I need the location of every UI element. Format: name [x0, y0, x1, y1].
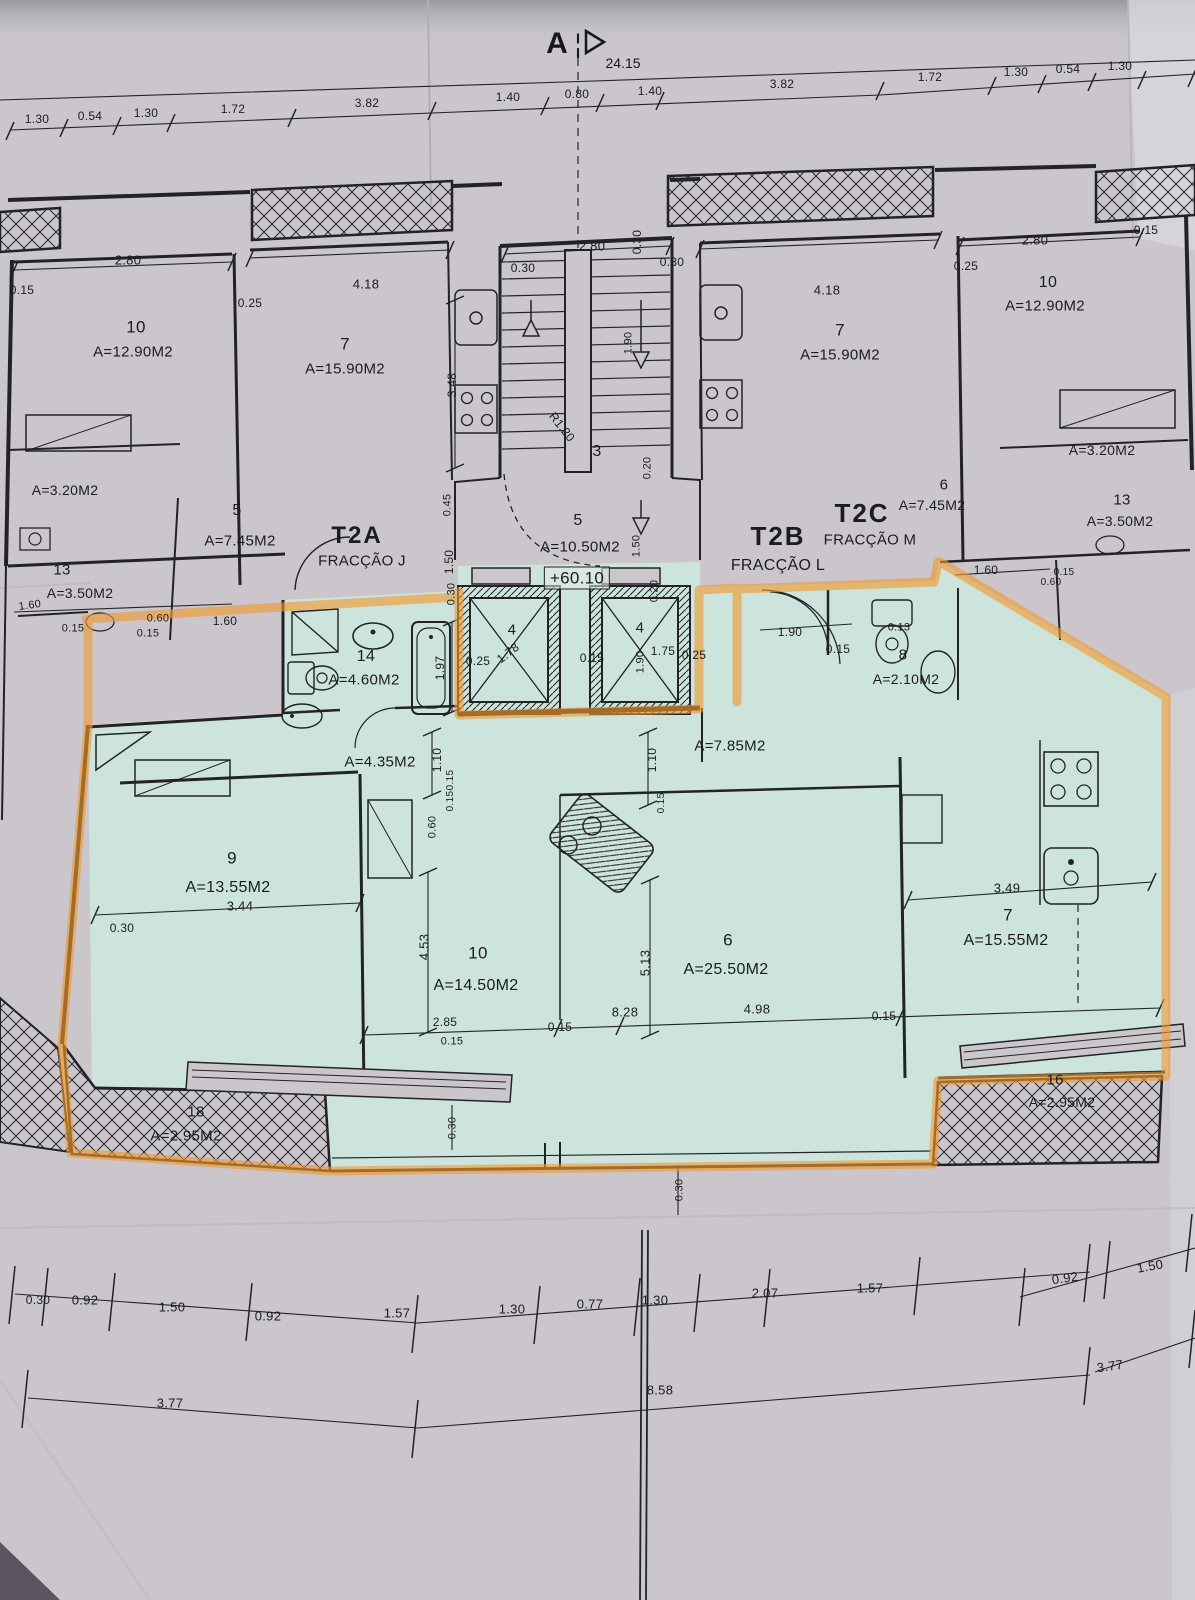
- dimension-label: 0.92: [255, 1310, 282, 1323]
- dimension-label: 4.98: [744, 1003, 771, 1016]
- elevator-number: 4: [508, 623, 517, 638]
- dimension-label: 1.30: [499, 1303, 526, 1316]
- room-number: 7: [835, 322, 845, 339]
- dimension-label: 0.13: [888, 623, 911, 634]
- room-number: 7: [340, 336, 350, 353]
- unit-code-t2c: T2C: [834, 500, 889, 526]
- dimension-label: 1.57: [857, 1282, 884, 1295]
- dimension-label: 0.15: [580, 652, 605, 664]
- dimension-label: 1.72: [221, 103, 246, 115]
- room-area: A=4.35M2: [344, 755, 415, 770]
- room-area: A=3.20M2: [32, 483, 99, 497]
- dimension-label: 0.30: [660, 256, 685, 268]
- room-number: 14: [357, 649, 375, 665]
- dimension-label: 3.77: [1096, 1358, 1124, 1375]
- room-number: 6: [723, 932, 733, 949]
- dimension-label: 5.13: [639, 950, 652, 977]
- room-number: 3: [592, 444, 601, 460]
- dimension-label: 0.60: [147, 614, 170, 625]
- dimension-label: 0.15: [826, 643, 851, 655]
- dimension-label: 2.85: [433, 1016, 458, 1028]
- unit-code-t2b: T2B: [750, 523, 805, 549]
- fraction-m-label: FRACÇÃO M: [824, 533, 917, 548]
- floor-plan-photo: A ¦ 24.15 1.300.541.301.723.821.400.801.…: [0, 0, 1195, 1600]
- dimension-label: 8.28: [612, 1006, 639, 1019]
- dimension-label: 1.60: [974, 564, 999, 576]
- room-number: 16: [1046, 1073, 1063, 1088]
- dimension-label: 1.30: [1108, 60, 1133, 72]
- dimension-label: 3.48: [446, 373, 458, 398]
- dimension-label: 1.50: [443, 550, 455, 575]
- dimension-label: 1.10: [431, 748, 443, 773]
- dimension-label: 1.60: [213, 615, 238, 627]
- level-mark: +60.10: [544, 567, 610, 590]
- fraction-j-label: FRACÇÃO J: [318, 554, 406, 569]
- room-number: 7: [1003, 907, 1013, 924]
- room-area: A=7.85M2: [694, 739, 765, 754]
- room-number: 5: [573, 513, 582, 529]
- room-number: 8: [899, 648, 908, 663]
- dimension-label: 4.18: [353, 278, 380, 291]
- dimension-label: 0.80: [565, 88, 590, 100]
- room-area: A=15.55M2: [964, 933, 1049, 949]
- dimension-label: 1.97: [434, 656, 446, 681]
- dimension-label: 0.15: [872, 1010, 897, 1022]
- dimension-label: 0.15: [441, 1037, 464, 1048]
- section-marker-label: A: [546, 27, 568, 61]
- dimension-label: 0.30: [110, 922, 135, 934]
- room-number: 9: [227, 850, 237, 867]
- dimension-label: 0.45: [443, 494, 454, 517]
- dimension-label: 1.50: [632, 535, 643, 558]
- dimension-label: 0.92: [72, 1294, 99, 1307]
- dimension-label: 4.18: [814, 284, 841, 297]
- dimension-label: 0.25: [682, 649, 707, 661]
- dimension-label: 0.25: [466, 655, 491, 667]
- elevator-number: 4: [636, 621, 645, 636]
- dimension-label: 0.15: [1134, 224, 1159, 236]
- dimension-label: 3.49: [994, 882, 1021, 895]
- dimension-label: 0.25: [238, 297, 263, 309]
- dimension-label: 0.30: [511, 262, 536, 274]
- dimension-label: 0.15: [548, 1021, 573, 1033]
- dimension-label: 0.30: [26, 1294, 51, 1306]
- dimension-label: 0.30: [675, 1179, 686, 1202]
- dimension-label: 2.80: [1022, 234, 1049, 247]
- dimension-label: 0.30: [631, 230, 643, 255]
- dimension-label: 1.30: [1004, 66, 1029, 78]
- overall-dimension-label: 24.15: [605, 55, 640, 71]
- room-number: 13: [1113, 493, 1130, 508]
- dimension-label: 1.57: [384, 1307, 411, 1320]
- dimension-label: 1.90: [778, 626, 803, 638]
- room-number: 5: [232, 503, 241, 519]
- room-number: 6: [940, 478, 949, 493]
- room-number: 10: [126, 319, 146, 336]
- dimension-label: 3.77: [157, 1397, 184, 1410]
- dimension-label: 1.30: [25, 113, 50, 125]
- dimension-label: 0.15: [10, 284, 35, 296]
- dimension-label: 0.77: [577, 1298, 604, 1311]
- dimension-label: 0.20: [650, 580, 661, 603]
- section-direction-icon: [581, 29, 607, 55]
- room-area: A=10.50M2: [540, 540, 620, 555]
- dimension-label: 2.07: [752, 1287, 779, 1300]
- dimension-label: 1.10: [646, 748, 658, 773]
- dimension-label: 1.40: [638, 85, 663, 97]
- dimension-label: 0.15: [62, 624, 85, 635]
- dimension-label: 1.40: [496, 91, 521, 103]
- room-area: A=3.50M2: [1087, 514, 1154, 528]
- room-number: 18: [187, 1105, 204, 1120]
- dimension-label: 2.80: [115, 254, 142, 267]
- dimension-label: 4.53: [418, 934, 431, 961]
- dimension-label: 1.30: [642, 1294, 669, 1307]
- room-area: A=3.50M2: [47, 586, 114, 600]
- room-area: A=14.50M2: [434, 978, 519, 994]
- dimension-label: 0.15: [137, 629, 160, 640]
- room-area: A=12.90M2: [1005, 299, 1085, 314]
- room-area: A=7.45M2: [204, 534, 275, 549]
- fraction-l-label: FRACÇÃO L: [731, 558, 825, 574]
- dimension-label: 2.80: [579, 240, 606, 253]
- dimension-label: 0.25: [954, 260, 979, 272]
- room-area: A=13.55M2: [186, 880, 271, 896]
- dimension-label: 1.30: [134, 107, 159, 119]
- dimension-label: 8.58: [647, 1384, 674, 1397]
- room-area: A=12.90M2: [93, 345, 173, 360]
- dimension-label: 0.30: [448, 1117, 459, 1140]
- dimension-label: 0.92: [1051, 1270, 1079, 1287]
- dimension-label: 1.72: [918, 71, 943, 83]
- dimension-label: 0.15: [446, 791, 456, 812]
- dimension-label: 0.15: [657, 793, 667, 814]
- room-area: A=7.45M2: [899, 498, 966, 512]
- room-area: A=2.95M2: [150, 1129, 221, 1144]
- dimension-label: 1.90: [636, 651, 647, 674]
- dimension-label: 0.60: [428, 816, 439, 839]
- dimension-label: 0.54: [78, 110, 103, 122]
- section-marker-tick: ¦: [575, 29, 582, 60]
- dimension-label: 1.90: [624, 332, 635, 355]
- room-area: A=15.90M2: [305, 362, 385, 377]
- dimension-label: 3.44: [227, 900, 254, 913]
- dimension-label: 0.15: [446, 770, 456, 791]
- room-area: A=15.90M2: [800, 348, 880, 363]
- unit-code-t2a: T2A: [331, 524, 382, 548]
- room-number: 13: [53, 563, 70, 578]
- room-number: 10: [468, 945, 488, 962]
- dimension-label: 0.30: [447, 583, 458, 606]
- room-area: A=2.95M2: [1029, 1095, 1096, 1109]
- dimension-label: 1.50: [159, 1301, 186, 1314]
- dimension-label: 0.60: [1041, 578, 1062, 588]
- dimension-label: 0.54: [1056, 63, 1081, 75]
- dimension-label: 1.75: [651, 645, 676, 657]
- room-area: A=2.10M2: [873, 672, 940, 686]
- room-number: 10: [1039, 275, 1057, 291]
- dimension-label: 0.20: [643, 457, 654, 480]
- dimension-label: 3.82: [355, 97, 380, 109]
- room-area: A=4.60M2: [328, 673, 399, 688]
- room-area: A=25.50M2: [684, 962, 769, 978]
- room-area: A=3.20M2: [1069, 443, 1136, 457]
- dimension-label: 3.82: [770, 78, 795, 90]
